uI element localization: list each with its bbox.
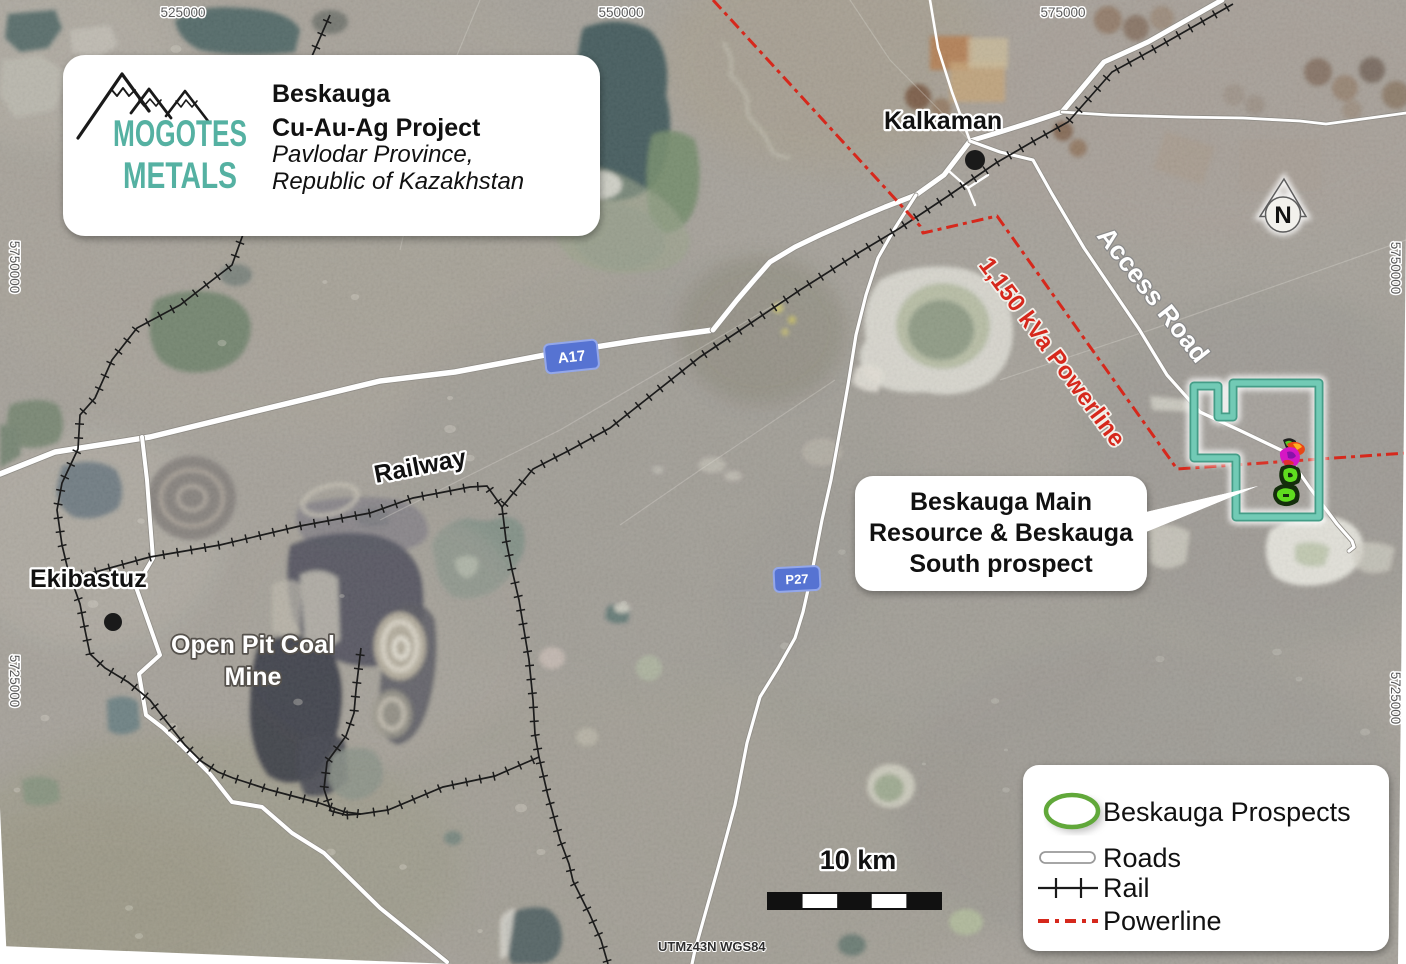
svg-text:South prospect: South prospect [909,550,1093,578]
svg-text:5750000: 5750000 [7,241,22,294]
svg-text:Resource & Beskauga: Resource & Beskauga [869,519,1134,547]
svg-text:MOGOTES: MOGOTES [113,113,247,154]
svg-text:575000: 575000 [1040,5,1085,20]
svg-text:Powerline: Powerline [1103,906,1222,936]
svg-text:Pavlodar Province,: Pavlodar Province, [272,141,473,168]
svg-text:A17: A17 [557,348,586,368]
svg-text:Beskauga Prospects: Beskauga Prospects [1103,797,1351,827]
svg-text:Beskauga Main: Beskauga Main [910,488,1092,516]
svg-text:550000: 550000 [598,5,643,20]
svg-text:Republic of Kazakhstan: Republic of Kazakhstan [272,168,524,195]
svg-text:METALS: METALS [123,155,237,196]
svg-text:5725000: 5725000 [1388,672,1403,725]
svg-text:10 km: 10 km [820,845,897,875]
svg-text:5725000: 5725000 [7,655,22,708]
svg-text:P27: P27 [785,571,809,587]
svg-text:Ekibastuz: Ekibastuz [30,565,147,593]
svg-text:Kalkaman: Kalkaman [884,107,1002,135]
svg-text:Open Pit Coal: Open Pit Coal [171,631,335,659]
svg-text:N: N [1274,202,1291,229]
svg-text:Mine: Mine [225,663,282,691]
svg-text:UTMz43N WGS84: UTMz43N WGS84 [658,939,766,954]
svg-text:525000: 525000 [160,5,205,20]
svg-text:Beskauga: Beskauga [272,80,391,108]
svg-text:5750000: 5750000 [1388,242,1403,295]
svg-text:Rail: Rail [1103,873,1150,903]
svg-text:Cu-Au-Ag Project: Cu-Au-Ag Project [272,114,481,142]
svg-text:Roads: Roads [1103,843,1181,873]
